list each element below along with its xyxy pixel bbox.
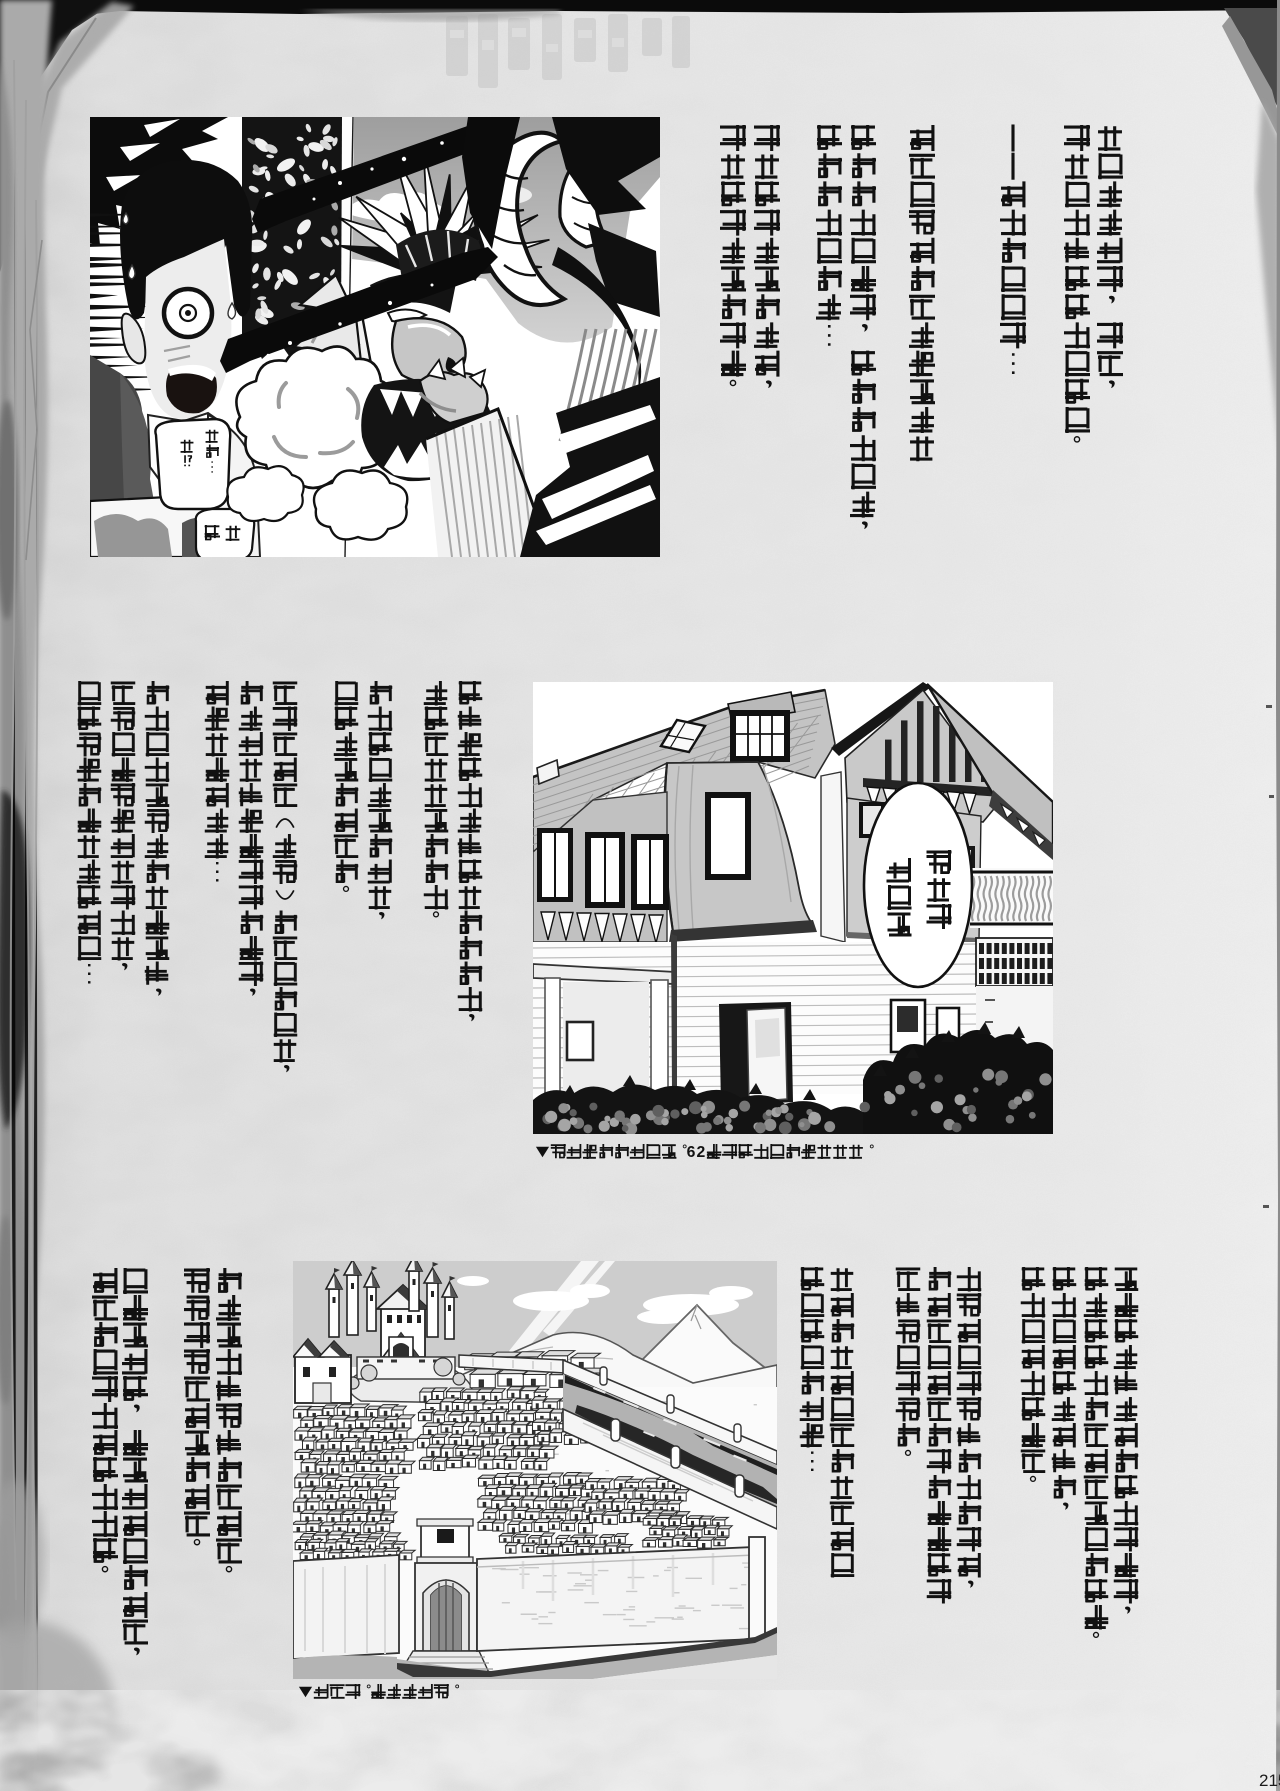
svg-text:6: 6 (687, 1144, 696, 1161)
svg-text:215: 215 (1259, 1771, 1280, 1790)
svg-text:2: 2 (696, 1144, 705, 1161)
